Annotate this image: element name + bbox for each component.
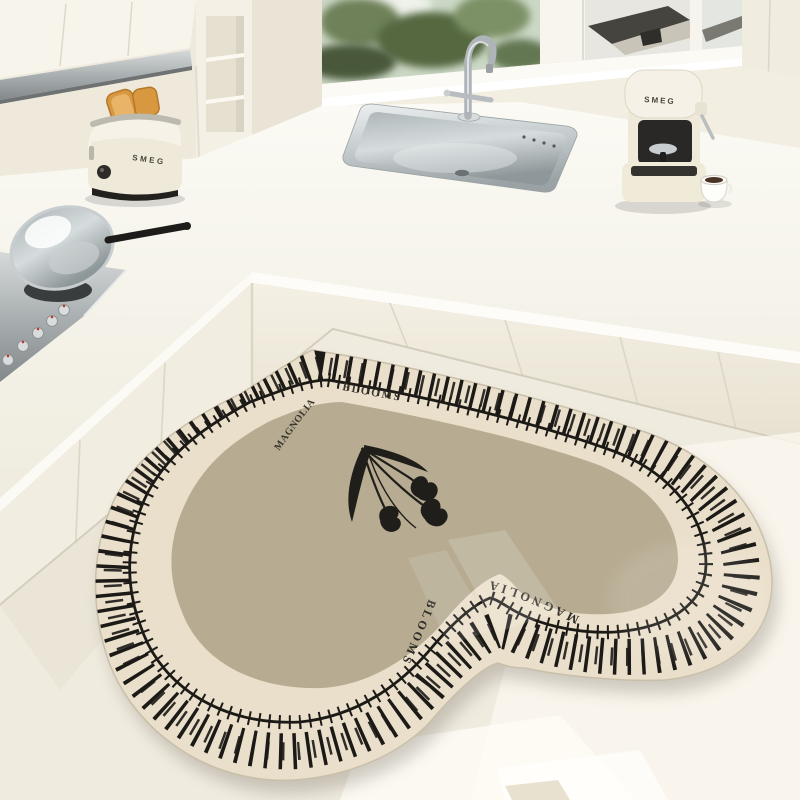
- kitchen-photo: SMEG SMEG MAGNOLIA BLOOMS MAGNOLIA BLOOM…: [0, 0, 800, 800]
- window-mullion: [540, 0, 585, 64]
- window-pane-house: [585, 0, 690, 60]
- espresso-head: [625, 70, 702, 118]
- coffee: [705, 177, 723, 183]
- toaster-lever: [89, 146, 94, 160]
- toaster-knob: [97, 165, 111, 179]
- sink-drain: [455, 170, 469, 176]
- steam-knob: [695, 102, 707, 116]
- drip-tray: [631, 166, 697, 176]
- window-mullion-2: [690, 0, 702, 51]
- window-pane-roof: [702, 0, 742, 50]
- kitchen-scene: SMEG SMEG MAGNOLIA BLOOMS MAGNOLIA BLOOM…: [0, 0, 800, 800]
